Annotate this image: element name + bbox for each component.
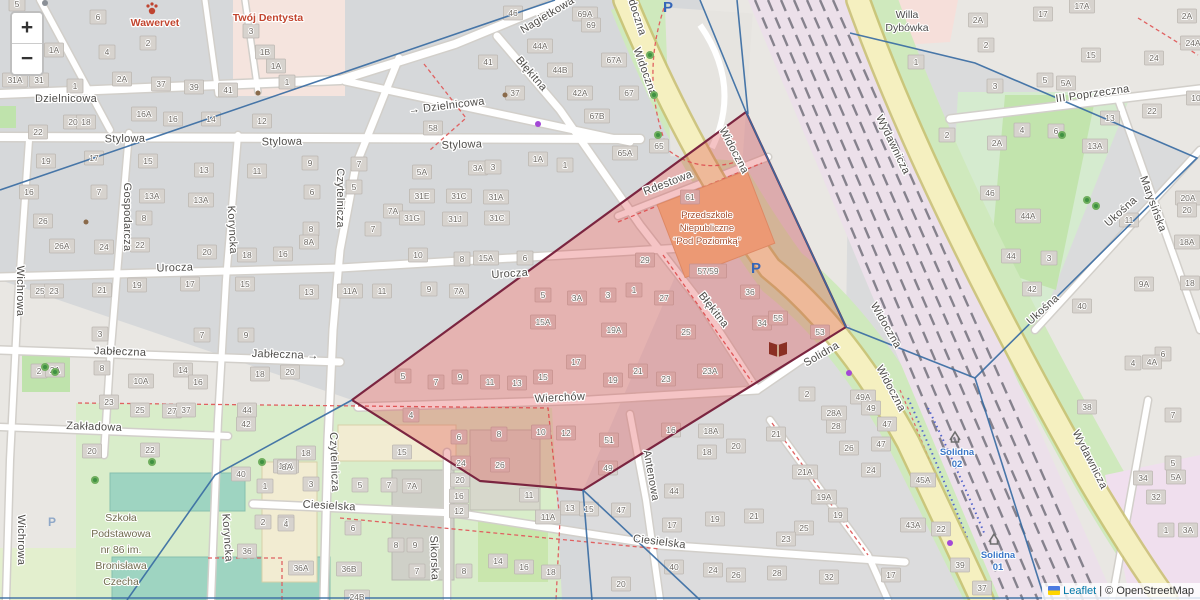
house-number: 1A: [271, 61, 282, 71]
poi-dot-icon: [503, 93, 508, 98]
ukraine-flag-icon: [1048, 586, 1060, 595]
house-number: 20: [731, 441, 741, 451]
house-number: 34: [1138, 473, 1148, 483]
house-number: 8: [142, 213, 147, 223]
house-number: 12: [257, 116, 267, 126]
house-number: 23: [49, 286, 59, 296]
house-number: 10: [536, 427, 546, 437]
house-number: 6: [310, 187, 315, 197]
house-number: 22: [135, 240, 145, 250]
house-number: 2: [945, 130, 950, 140]
house-number: 8: [497, 429, 502, 439]
house-number: 5A: [417, 167, 428, 177]
poi-label-villa: Dybówka: [885, 22, 928, 34]
parking-icon: P: [48, 515, 56, 529]
house-number: 24: [1149, 53, 1159, 63]
house-number: 5: [401, 371, 406, 381]
house-number: 27: [659, 293, 669, 303]
house-number: 44: [242, 405, 252, 415]
house-number: 31A: [488, 192, 503, 202]
house-number: 49A: [855, 392, 870, 402]
map[interactable]: 561A242A31A31137394131B1A116A20181614122…: [0, 0, 1200, 600]
house-number: 17: [1038, 9, 1048, 19]
house-number: 19: [608, 375, 618, 385]
poi-label-kindergarten: Przedszkole: [681, 210, 733, 221]
street-label: Jabłeczna: [94, 345, 147, 359]
house-number: 42: [1027, 284, 1037, 294]
house-number: 53: [815, 327, 825, 337]
house-number: 16: [454, 491, 464, 501]
house-number: 19: [41, 156, 51, 166]
leaflet-link[interactable]: Leaflet: [1063, 585, 1096, 597]
house-number: 9: [308, 158, 313, 168]
house-number: 25: [35, 286, 45, 296]
house-number: 3: [249, 26, 254, 36]
house-number: 7A: [454, 286, 465, 296]
house-number: 24: [99, 242, 109, 252]
house-number: 46: [508, 8, 518, 18]
house-number: 31: [34, 75, 44, 85]
tree-icon: [53, 370, 57, 374]
house-number: 57/59: [697, 266, 719, 276]
house-number: 23: [661, 374, 671, 384]
house-number: 22: [145, 445, 155, 455]
house-number: 13: [304, 287, 314, 297]
house-number: 16: [278, 249, 288, 259]
house-number: 17A: [1074, 1, 1089, 11]
tree-icon: [1060, 133, 1064, 137]
house-number: 32: [1151, 492, 1161, 502]
poi-label-school: Szkoła: [105, 512, 137, 524]
house-number: 36B: [341, 564, 356, 574]
house-number: 15A: [535, 317, 550, 327]
house-number: 31C: [451, 191, 467, 201]
house-number: 18A: [1179, 237, 1194, 247]
zoom-in-button[interactable]: +: [12, 13, 42, 44]
house-number: 21: [97, 285, 107, 295]
street-label: Gospodarcza: [121, 183, 133, 252]
house-number: 2: [805, 389, 810, 399]
house-number: 20: [87, 446, 97, 456]
house-number: 11A: [541, 512, 556, 522]
house-number: 7A: [388, 206, 399, 216]
house-number: 19: [132, 280, 142, 290]
zoom-out-button[interactable]: −: [12, 44, 42, 74]
poi-label-dentist: Twój Dentysta: [233, 12, 304, 24]
house-number: 40: [1077, 301, 1087, 311]
house-number: 22: [1147, 106, 1157, 116]
house-number: 6: [1161, 349, 1166, 359]
poi-label-school: Bronisława: [95, 560, 147, 572]
poi-label-villa: Willa: [896, 9, 919, 21]
poi-label-stop-solidna-02: 02: [952, 459, 963, 470]
street-label: Sikorska: [427, 535, 441, 581]
house-number: 5: [15, 0, 20, 9]
house-number: 2: [984, 40, 989, 50]
house-number: 34: [757, 318, 767, 328]
house-number: 5A: [1061, 78, 1072, 88]
house-number: 14: [206, 114, 216, 124]
house-number: 4: [409, 410, 414, 420]
house-number: 69: [586, 20, 596, 30]
house-number: 42A: [572, 88, 587, 98]
house-number: 1A: [49, 45, 60, 55]
tree-icon: [93, 478, 97, 482]
house-number: 4: [105, 47, 110, 57]
house-number: 44: [669, 486, 679, 496]
house-number: 6: [96, 12, 101, 22]
tree-icon: [648, 53, 652, 57]
poi-label-stop-solidna-02: Solidna: [940, 447, 975, 458]
house-number: 55: [773, 313, 783, 323]
house-number: 17: [886, 570, 896, 580]
paw-icon: [150, 2, 153, 5]
house-number: 21: [749, 511, 759, 521]
house-number: 15A: [478, 253, 493, 263]
house-number: 39: [955, 560, 965, 570]
street-label: Stylowa: [441, 138, 483, 151]
street-label: Koryncka: [225, 205, 240, 254]
house-number: 4: [1020, 125, 1025, 135]
house-number: 14: [493, 556, 503, 566]
house-number: 17: [571, 357, 581, 367]
poi-label-stop-solidna-01: Solidna: [981, 550, 1016, 561]
house-number: 9: [244, 330, 249, 340]
house-number: 1: [914, 57, 919, 67]
house-number: 45A: [915, 475, 930, 485]
house-number: 21: [633, 366, 643, 376]
house-number: 23: [781, 534, 791, 544]
house-number: 15: [538, 372, 548, 382]
house-number: 23A: [702, 366, 717, 376]
house-number: 7: [371, 224, 376, 234]
street-label: Stylowa: [262, 136, 303, 149]
street-label: Wichrowa: [14, 266, 26, 317]
house-number: 13A: [193, 195, 208, 205]
house-number: 19: [833, 510, 843, 520]
house-number: 25: [799, 523, 809, 533]
tree-icon: [260, 460, 264, 464]
parking-icon: P: [751, 260, 761, 277]
house-number: 61: [685, 192, 695, 202]
house-number: 47: [876, 439, 886, 449]
house-number: 26: [495, 460, 505, 470]
house-number: 31J: [448, 214, 462, 224]
house-number: 16: [193, 377, 203, 387]
house-number: 13: [1105, 113, 1115, 123]
house-number: 1A: [533, 154, 544, 164]
house-number: 18: [242, 250, 252, 260]
house-number: 25: [681, 327, 691, 337]
house-number: 40: [669, 562, 679, 572]
house-number: 16: [519, 562, 529, 572]
house-number: 24: [866, 465, 876, 475]
house-number: 13A: [144, 191, 159, 201]
house-number: 10: [1191, 93, 1200, 103]
house-number: 9: [427, 284, 432, 294]
poi-label-kindergarten: Niepubliczne: [680, 223, 734, 234]
house-number: 4: [284, 519, 289, 529]
house-number: 3: [606, 290, 611, 300]
house-number: 24: [708, 565, 718, 575]
house-number: 4A: [1147, 357, 1158, 367]
house-number: 17: [185, 279, 195, 289]
tree-icon: [1094, 204, 1098, 208]
house-number: 20A: [1180, 193, 1195, 203]
house-number: 27: [167, 406, 177, 416]
house-number: 65: [654, 141, 664, 151]
house-number: 9: [458, 372, 463, 382]
osm-link[interactable]: © OpenStreetMap: [1105, 585, 1194, 597]
house-number: 37: [510, 88, 520, 98]
house-number: 15: [584, 504, 594, 514]
house-number: 13: [199, 165, 209, 175]
house-number: 7: [1171, 410, 1176, 420]
house-number: 47: [616, 505, 626, 515]
poi-label-stop-solidna-01: 01: [993, 562, 1004, 573]
house-number: 1B: [260, 47, 271, 57]
zoom-control: + −: [10, 11, 44, 76]
house-number: 6: [351, 523, 356, 533]
house-number: 1: [285, 77, 290, 87]
house-number: 6: [1054, 126, 1059, 136]
house-number: 67: [624, 88, 634, 98]
house-number: 6: [457, 432, 462, 442]
house-number: 11: [378, 286, 387, 296]
house-number: 28A: [826, 408, 841, 418]
house-number: 65A: [617, 148, 632, 158]
tree-icon: [656, 133, 660, 137]
house-number: 42: [241, 419, 251, 429]
house-number: 41: [223, 85, 233, 95]
house-number: 28: [772, 568, 782, 578]
house-number: 11A: [343, 286, 358, 296]
poi-dot-icon: [846, 370, 852, 376]
house-number: 2: [37, 366, 42, 376]
house-number: 9A: [1139, 279, 1150, 289]
house-number: 3: [1047, 253, 1052, 263]
house-number: 18: [1185, 278, 1195, 288]
house-number: 44A: [532, 41, 547, 51]
house-number: 5: [358, 480, 363, 490]
house-number: 26: [731, 570, 741, 580]
house-number: 4: [1131, 358, 1136, 368]
house-number: 5: [352, 182, 357, 192]
house-number: 18: [546, 567, 556, 577]
house-number: 5: [1043, 75, 1048, 85]
house-number: 7: [200, 330, 205, 340]
house-number: 5: [1171, 458, 1176, 468]
house-number: 16A: [136, 109, 151, 119]
house-number: 2A: [992, 138, 1003, 148]
house-number: 15: [397, 447, 407, 457]
house-number: 15: [143, 156, 153, 166]
house-number: 37: [156, 79, 166, 89]
house-number: 26A: [54, 241, 69, 251]
poi-dot-icon: [256, 91, 261, 96]
house-number: 3A: [1183, 525, 1194, 535]
house-number: 38: [1082, 402, 1092, 412]
house-number: 13A: [1087, 141, 1102, 151]
house-number: 44: [1006, 251, 1016, 261]
poi-dot-icon: [84, 220, 89, 225]
house-number: 44A: [1020, 211, 1035, 221]
house-number: 39: [189, 82, 199, 92]
house-number: 58: [428, 123, 438, 133]
house-number: 11: [1125, 215, 1134, 225]
street-label: Dzielnicowa: [35, 93, 98, 105]
house-number: 32: [824, 572, 834, 582]
poi-dot-icon: [535, 121, 541, 127]
house-number: 12: [561, 428, 571, 438]
house-number: 5: [541, 290, 546, 300]
house-number: 46: [985, 188, 995, 198]
tree-icon: [652, 93, 656, 97]
street-label: Stylowa: [105, 133, 146, 146]
house-number: 3: [993, 81, 998, 91]
house-number: 8: [100, 363, 105, 373]
house-number: 26: [844, 443, 854, 453]
house-number: 3: [309, 479, 314, 489]
house-number: 40: [236, 469, 246, 479]
street-label: Urocza: [156, 261, 194, 274]
house-number: 24A: [1185, 38, 1200, 48]
house-number: 2: [146, 38, 151, 48]
house-number: 11: [525, 490, 534, 500]
house-number: 20: [616, 579, 626, 589]
house-number: 20: [68, 117, 78, 127]
parking-icon: P: [663, 0, 673, 16]
house-number: 26: [38, 216, 48, 226]
tree-icon: [1085, 198, 1089, 202]
house-number: 13: [512, 378, 522, 388]
house-number: 19A: [606, 325, 621, 335]
house-number: 2A: [1182, 11, 1193, 21]
poi-label-school: Czecha: [103, 576, 139, 588]
poi-label-school: Podstawowa: [91, 528, 151, 540]
house-number: 31G: [404, 213, 420, 223]
house-number: 31A: [7, 75, 22, 85]
house-number: 31E: [414, 191, 429, 201]
house-number: 8A: [282, 462, 293, 472]
house-number: 11: [253, 166, 262, 176]
street-label: Wichrowa: [15, 515, 27, 566]
house-number: 12: [454, 506, 464, 516]
house-number: 7: [357, 159, 362, 169]
house-number: 37: [181, 405, 191, 415]
house-number: 24B: [349, 592, 364, 600]
street-label: Zakładowa: [66, 420, 123, 434]
house-number: 21: [771, 429, 781, 439]
house-number: 19A: [816, 492, 831, 502]
poi-label-school: nr 86 im.: [101, 544, 142, 556]
paw-icon: [154, 4, 157, 7]
house-number: 20: [285, 367, 295, 377]
house-number: 51: [604, 435, 614, 445]
house-number: 3: [491, 162, 496, 172]
house-number: 67B: [589, 111, 604, 121]
house-number: 3A: [572, 293, 583, 303]
house-number: 20: [1182, 205, 1192, 215]
house-number: 44B: [552, 65, 567, 75]
house-number: 36: [745, 287, 755, 297]
house-number: 18: [81, 117, 91, 127]
poi-label-vet: Wawervet: [131, 17, 180, 29]
house-number: 24: [456, 458, 466, 468]
house-number: 16: [168, 114, 178, 124]
house-number: 20: [455, 475, 465, 485]
house-number: 9: [413, 540, 418, 550]
house-number: 7: [434, 377, 439, 387]
house-number: 1: [73, 81, 78, 91]
house-number: 17: [667, 520, 677, 530]
house-number: 22: [33, 127, 43, 137]
house-number: 7A: [407, 481, 418, 491]
attribution-bar: Leaflet | © OpenStreetMap: [1042, 583, 1200, 600]
street-label: Jabłeczna →: [251, 348, 318, 362]
house-number: 7: [415, 566, 420, 576]
house-number: 18: [301, 448, 311, 458]
house-number: 49: [866, 403, 876, 413]
map-canvas[interactable]: 561A242A31A31137394131B1A116A20181614122…: [0, 0, 1200, 600]
house-number: 28: [831, 421, 841, 431]
paw-icon: [149, 8, 155, 14]
house-number: 3A: [473, 163, 484, 173]
tree-icon: [150, 460, 154, 464]
house-number: 29: [640, 255, 650, 265]
house-number: 8: [309, 224, 314, 234]
attribution-separator: |: [1096, 585, 1105, 597]
house-number: 31C: [489, 213, 505, 223]
house-number: 2A: [973, 15, 984, 25]
house-number: 11: [486, 377, 495, 387]
house-number: 18: [702, 447, 712, 457]
street-label: Czytelnicza: [334, 168, 346, 228]
tree-icon: [43, 365, 47, 369]
house-number: 22: [936, 524, 946, 534]
house-number: 18A: [703, 426, 718, 436]
house-number: 13: [565, 503, 575, 513]
house-number: 7: [97, 187, 102, 197]
house-number: 8: [394, 540, 399, 550]
house-number: 16: [24, 187, 34, 197]
house-number: 17: [89, 153, 99, 163]
house-number: 8: [462, 566, 467, 576]
house-number: 69A: [577, 9, 592, 19]
poi-label-kindergarten: “Pod Poziomką”: [673, 236, 741, 247]
house-number: 1: [263, 481, 268, 491]
house-number: 14: [178, 365, 188, 375]
house-number: 41: [483, 57, 493, 67]
house-number: 5A: [1171, 472, 1182, 482]
house-number: 25: [135, 405, 145, 415]
house-number: 2A: [117, 74, 128, 84]
house-number: 15: [1086, 50, 1096, 60]
poi-dot-icon: [947, 540, 953, 546]
house-number: 49: [603, 463, 613, 473]
paw-icon: [146, 4, 149, 7]
house-number: 47: [882, 419, 892, 429]
house-number: 18: [255, 369, 265, 379]
house-number: 43A: [905, 520, 920, 530]
house-number: 37: [977, 583, 987, 593]
house-number: 1: [632, 285, 637, 295]
house-number: 10A: [133, 376, 148, 386]
house-number: 2: [261, 517, 266, 527]
house-number: 23: [104, 397, 114, 407]
house-number: 10: [413, 250, 423, 260]
house-number: 7: [387, 480, 392, 490]
